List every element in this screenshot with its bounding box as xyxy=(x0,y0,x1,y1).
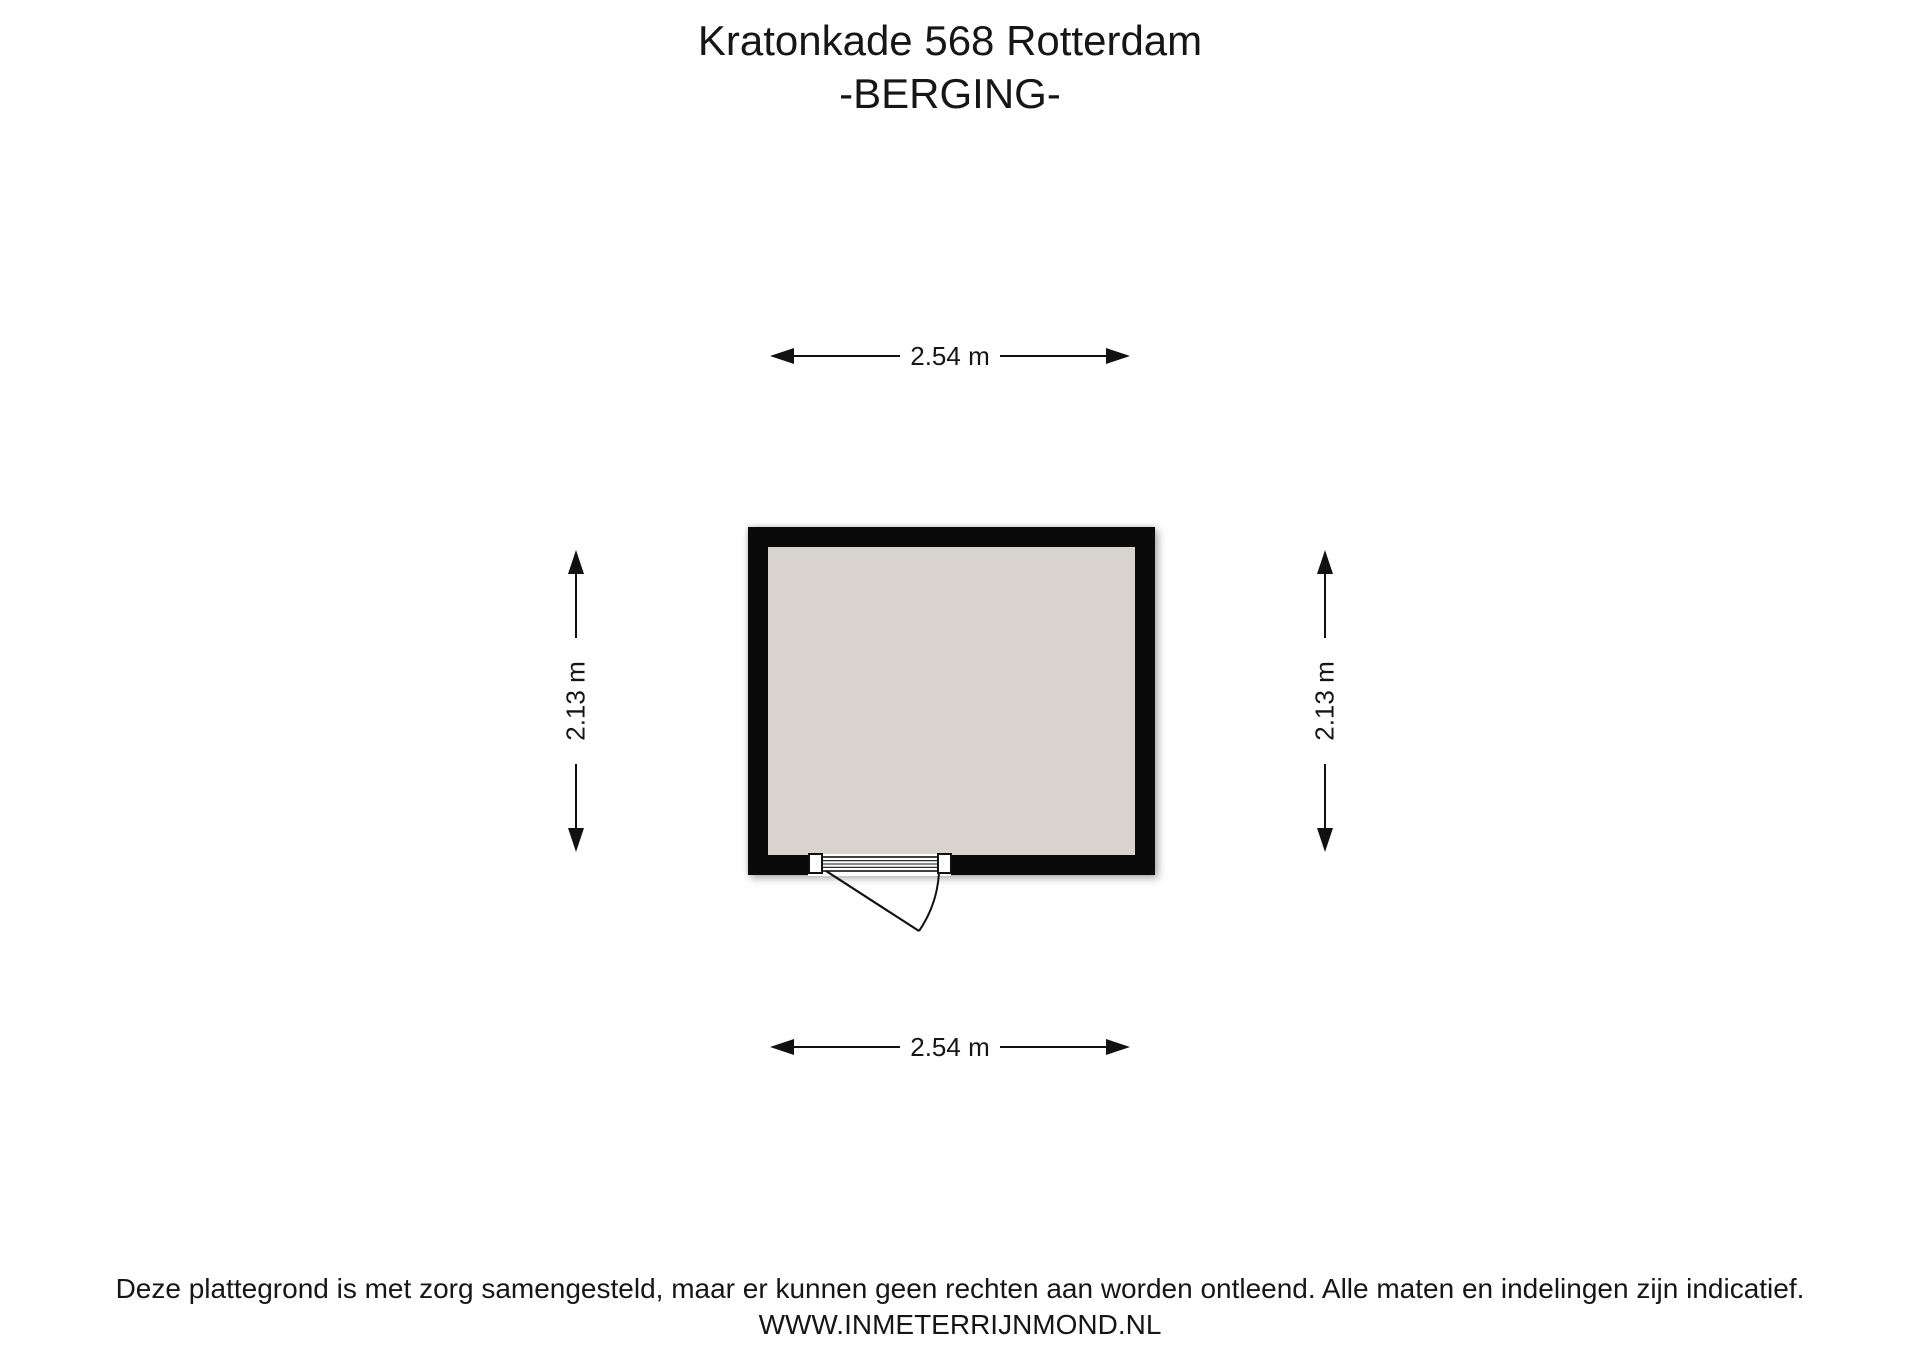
dimension-line xyxy=(1324,574,1326,638)
dimension-bottom: 2.54 m xyxy=(770,1031,1130,1063)
dimension-line xyxy=(1324,764,1326,828)
dimension-top-label: 2.54 m xyxy=(900,341,1000,372)
dimension-right-label: 2.13 m xyxy=(1310,661,1341,741)
arrowhead-left-icon xyxy=(770,1039,794,1055)
arrowhead-down-icon xyxy=(568,828,584,852)
door-jamb-left xyxy=(809,854,822,873)
dimension-left: 2.13 m xyxy=(560,550,592,852)
arrowhead-right-icon xyxy=(1106,348,1130,364)
title-block: Kratonkade 568 Rotterdam -BERGING- xyxy=(0,14,1900,120)
door-jamb-right xyxy=(938,854,951,873)
door xyxy=(780,840,1000,950)
dimension-left-label-wrap: 2.13 m xyxy=(560,638,592,764)
arrowhead-up-icon xyxy=(568,550,584,574)
dimension-line xyxy=(575,764,577,828)
dimension-line xyxy=(794,355,900,357)
arrowhead-up-icon xyxy=(1317,550,1333,574)
arrowhead-left-icon xyxy=(770,348,794,364)
page-title: Kratonkade 568 Rotterdam xyxy=(0,14,1900,68)
door-leaf-line xyxy=(823,869,919,931)
dimension-left-label: 2.13 m xyxy=(561,661,592,741)
dimension-line xyxy=(575,574,577,638)
arrowhead-right-icon xyxy=(1106,1039,1130,1055)
footer-disclaimer: Deze plattegrond is met zorg samengestel… xyxy=(0,1272,1920,1306)
dimension-right-label-wrap: 2.13 m xyxy=(1309,638,1341,764)
dimension-bottom-label: 2.54 m xyxy=(900,1032,1000,1063)
dimension-right: 2.13 m xyxy=(1309,550,1341,852)
arrowhead-down-icon xyxy=(1317,828,1333,852)
footer-website: WWW.INMETERRIJNMOND.NL xyxy=(0,1308,1920,1342)
dimension-line xyxy=(794,1046,900,1048)
page-subtitle: -BERGING- xyxy=(0,68,1900,120)
floor-plan-page: Kratonkade 568 Rotterdam -BERGING- 2.54 … xyxy=(0,0,1920,1358)
room-berging xyxy=(748,527,1155,875)
dimension-top: 2.54 m xyxy=(770,340,1130,372)
dimension-line xyxy=(1000,1046,1106,1048)
door-swing-arc xyxy=(919,873,939,931)
dimension-line xyxy=(1000,355,1106,357)
room-floor xyxy=(768,547,1135,855)
